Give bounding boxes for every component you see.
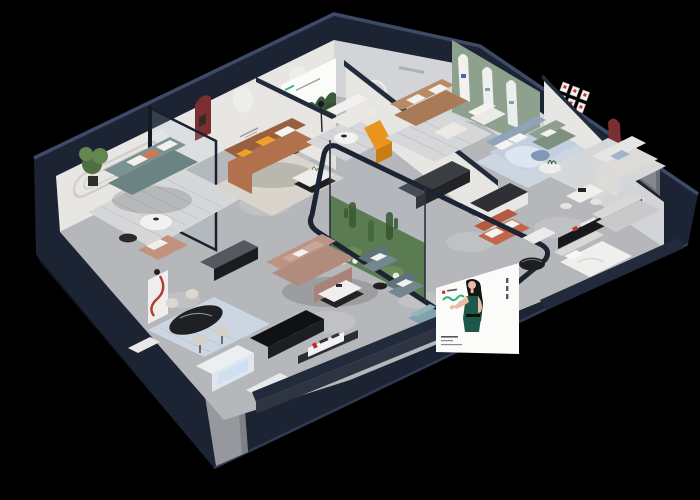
dining-chair [560,203,572,209]
cream-chair [186,289,199,299]
cream-chair [193,335,207,346]
round-table [539,163,561,174]
woman-belt [466,314,480,317]
black-side-table [119,234,137,243]
table-decor [153,218,159,221]
cream-chair [215,326,229,337]
cream-chair [166,298,179,308]
arch-poster-logo [485,88,490,91]
arch-poster-logo [461,74,466,78]
showroom-svg: LUVLU [0,0,700,500]
woman-face [468,281,476,289]
table-decor [336,284,342,287]
tableware [578,188,586,192]
showroom-render: LUVLU [0,0,700,500]
plant-pot [88,176,98,186]
black-side-table [373,283,387,290]
woman-neck [471,289,474,293]
dining-chair [590,199,602,205]
round-coffee-table [140,214,172,230]
wall-spotlight [233,87,253,113]
arch-poster-logo [509,101,514,104]
shelf-decor [154,269,160,275]
round-table [334,132,358,144]
table-decor [341,135,347,138]
